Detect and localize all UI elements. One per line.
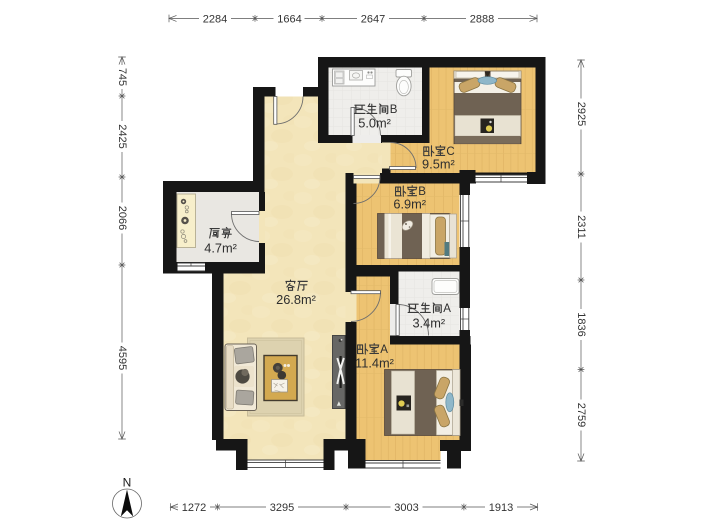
svg-text:2925: 2925: [575, 102, 587, 126]
svg-text:1913: 1913: [489, 502, 513, 514]
svg-text:A: A: [380, 344, 388, 356]
svg-text:1272: 1272: [182, 502, 206, 514]
svg-text:6.9m²: 6.9m²: [393, 196, 426, 211]
svg-text:11.4m²: 11.4m²: [355, 355, 395, 370]
svg-text:N: N: [123, 476, 132, 490]
svg-text:3295: 3295: [270, 502, 294, 514]
svg-text:2284: 2284: [203, 14, 227, 26]
svg-text:2888: 2888: [470, 14, 494, 26]
svg-text:745: 745: [116, 68, 128, 86]
svg-text:5.0m²: 5.0m²: [358, 116, 391, 131]
svg-text:26.8m²: 26.8m²: [276, 292, 317, 307]
svg-text:4.7m²: 4.7m²: [204, 240, 237, 255]
svg-text:3003: 3003: [394, 502, 418, 514]
svg-text:1836: 1836: [575, 312, 587, 336]
svg-text:4595: 4595: [116, 346, 128, 370]
svg-text:2759: 2759: [575, 403, 587, 427]
svg-text:3.4m²: 3.4m²: [412, 315, 445, 330]
svg-text:1664: 1664: [277, 14, 301, 26]
svg-text:2311: 2311: [575, 215, 587, 239]
svg-text:B: B: [390, 104, 398, 116]
svg-text:2066: 2066: [116, 206, 128, 230]
svg-text:2425: 2425: [116, 124, 128, 148]
svg-text:2647: 2647: [361, 14, 385, 26]
svg-text:9.5m²: 9.5m²: [422, 156, 455, 171]
svg-text:A: A: [443, 303, 451, 315]
